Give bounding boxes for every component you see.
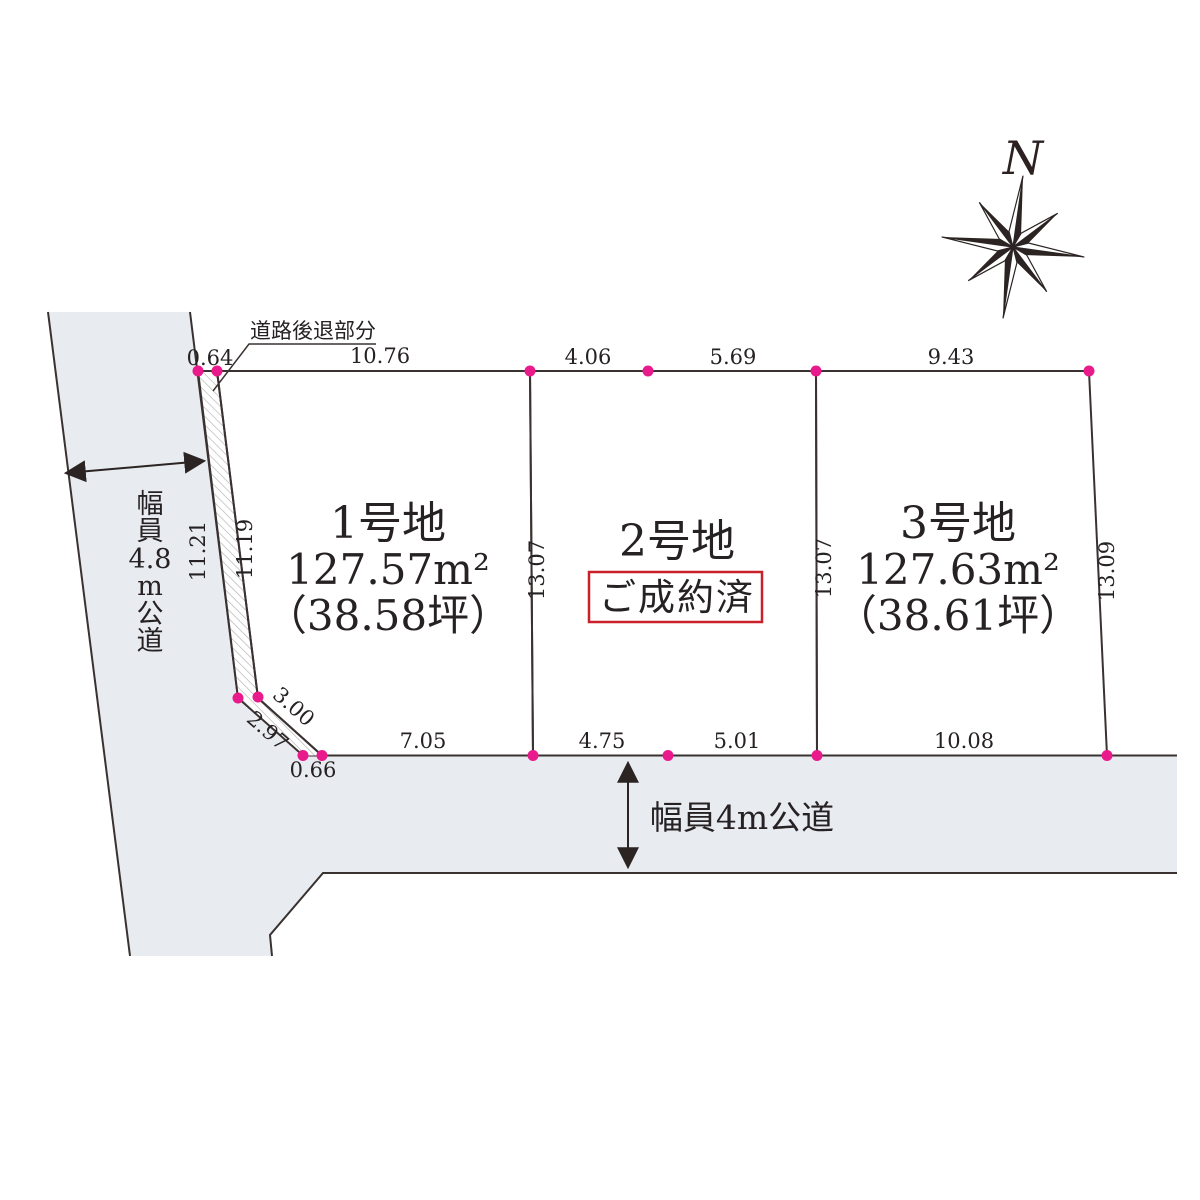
plot-1-area-tsubo: （38.58坪）: [265, 591, 511, 640]
corner-dot: [528, 750, 539, 761]
dim-top-0-64: 0.64: [187, 346, 234, 370]
dim-left-inner-11-19: 11.19: [233, 519, 257, 579]
corner-dot: [812, 750, 823, 761]
bottom-road-label: 幅員4m公道: [650, 798, 834, 837]
dim-bottom-4-75: 4.75: [579, 729, 626, 753]
dim-bottom-10-08: 10.08: [934, 729, 994, 753]
site-plan: 0.64 10.76 4.06 5.69 9.43 0.66 7.05 4.75…: [0, 0, 1200, 1200]
left-road-label-seg: 道: [137, 626, 164, 657]
corner-dot: [811, 366, 822, 377]
dim-bottom-5-01: 5.01: [714, 729, 761, 753]
corner-dot: [663, 750, 674, 761]
corner-dot: [525, 366, 536, 377]
corner-dot: [1102, 750, 1113, 761]
dim-top-5-69: 5.69: [710, 345, 757, 369]
plot-3-name: 3号地: [900, 498, 1016, 549]
plot-1-name: 1号地: [330, 498, 446, 549]
dim-left-outer-11-21: 11.21: [186, 521, 210, 581]
setback-label: 道路後退部分: [250, 319, 376, 343]
dim-top-10-76: 10.76: [350, 344, 410, 368]
dim-top-4-06: 4.06: [565, 345, 612, 369]
dim-bottom-0-66: 0.66: [290, 758, 337, 782]
dim-boundary-1-2-13-07: 13.07: [525, 540, 549, 600]
dim-top-9-43: 9.43: [928, 345, 975, 369]
corner-dot: [643, 366, 654, 377]
corner-dot: [253, 692, 264, 703]
plot-3-area-m2: 127.63m²: [856, 545, 1060, 594]
dim-right-13-09: 13.09: [1095, 541, 1119, 601]
corner-dot: [1084, 366, 1095, 377]
dim-bottom-7-05: 7.05: [400, 729, 447, 753]
plot-3-area-tsubo: （38.61坪）: [835, 591, 1081, 640]
left-road-label-seg: 員: [137, 516, 164, 547]
left-road-label-seg: m: [137, 571, 163, 602]
sold-badge-label: ご成約済: [599, 576, 755, 619]
site-plan-svg: 0.64 10.76 4.06 5.69 9.43 0.66 7.05 4.75…: [0, 0, 1200, 1200]
plot-1-area-m2: 127.57m²: [286, 545, 490, 594]
dim-boundary-2-3-13-07: 13.07: [812, 538, 836, 598]
corner-dot: [233, 693, 244, 704]
plot-2-name: 2号地: [619, 516, 735, 567]
